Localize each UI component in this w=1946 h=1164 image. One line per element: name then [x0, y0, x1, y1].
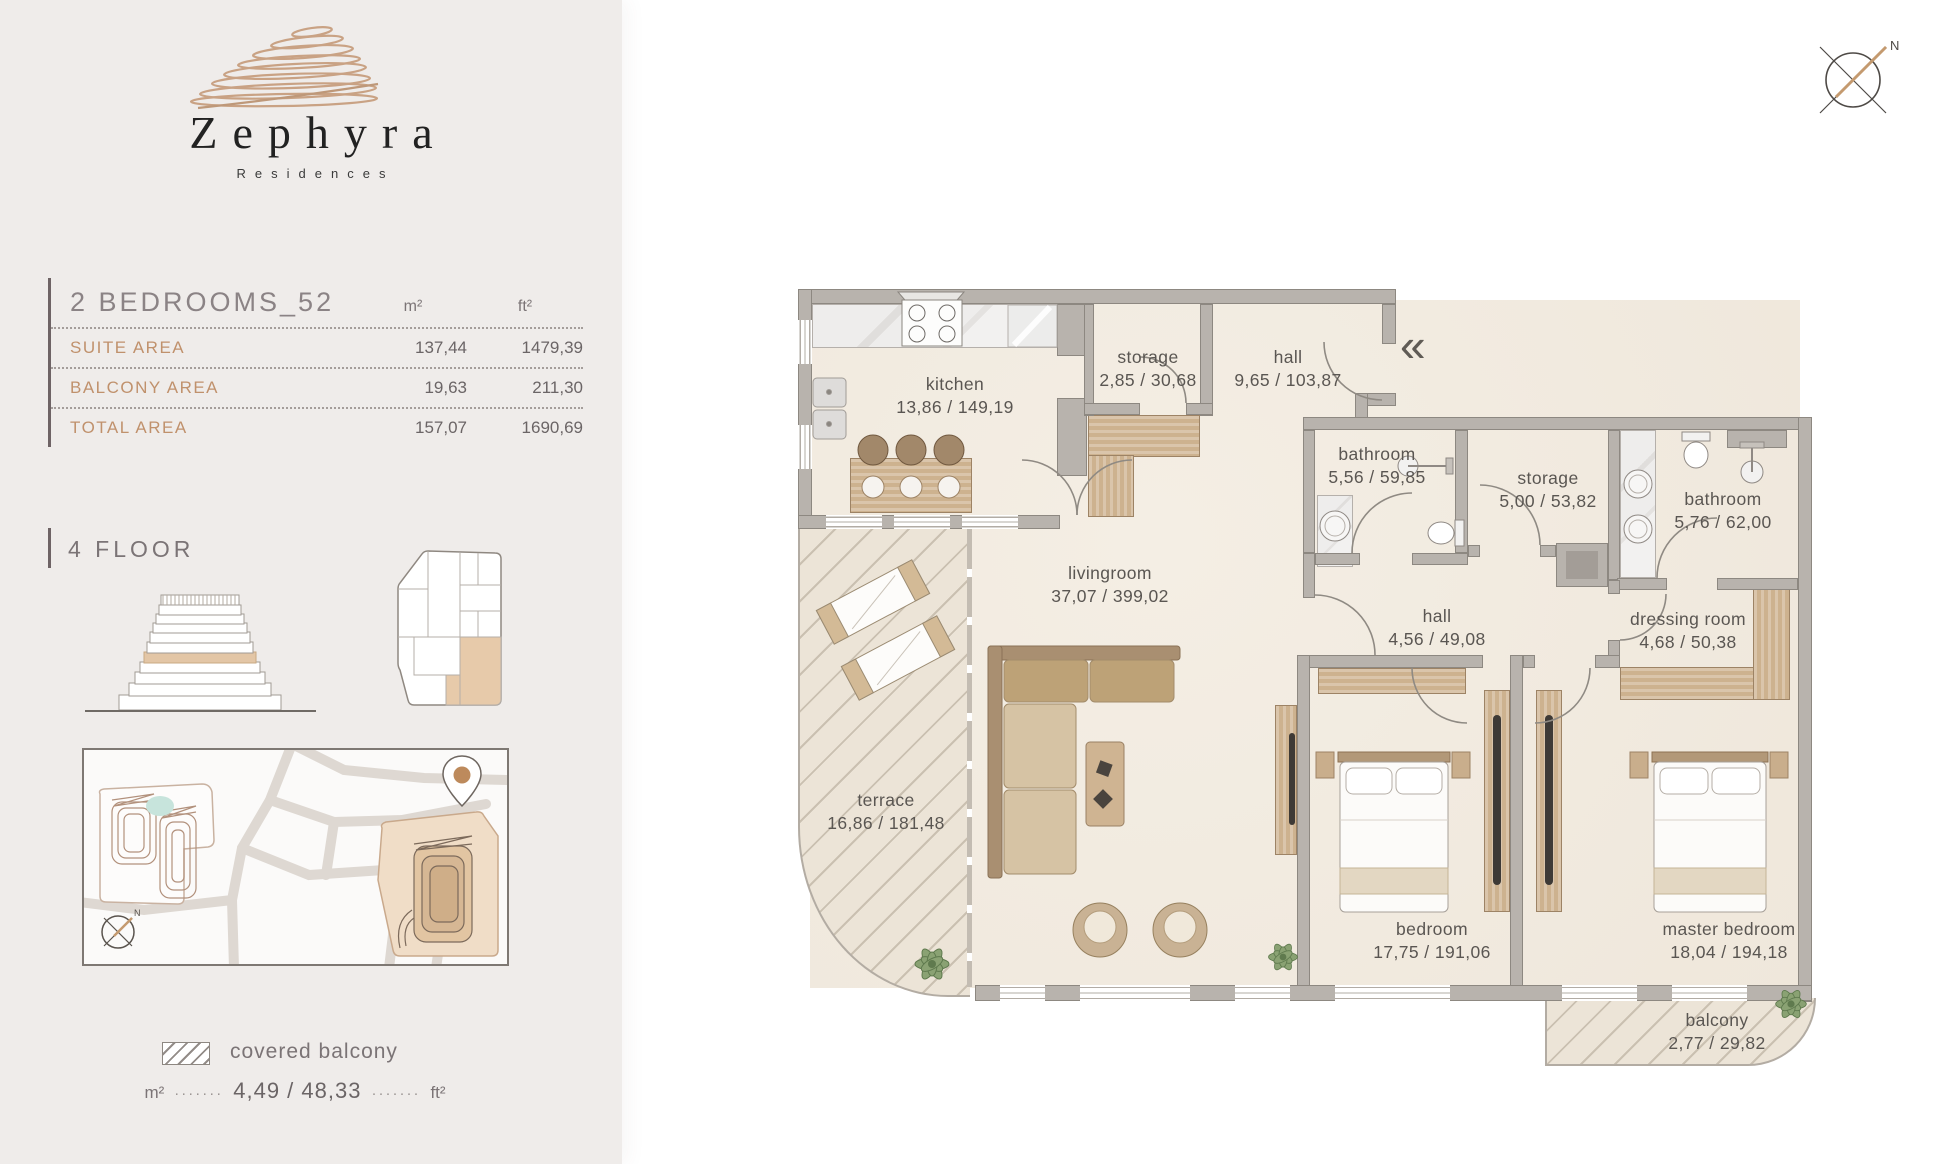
table-row: SUITE AREA 137,44 1479,39 — [51, 327, 583, 367]
row-ft2: 1690,69 — [467, 418, 583, 438]
room-label-storage-1: storage 2,85 / 30,68 — [1099, 346, 1196, 392]
room-name: balcony — [1668, 1009, 1765, 1032]
map-pin-icon — [443, 756, 481, 806]
window — [826, 515, 882, 529]
covered-balcony-label: covered balcony — [230, 1040, 398, 1064]
room-label-master-bedroom: master bedroom 18,04 / 194,18 — [1662, 918, 1795, 964]
brand-name: Zephyra — [0, 106, 622, 159]
logo-scribble-icon — [190, 20, 405, 115]
wardrobe-rail — [1545, 715, 1553, 885]
covered-balcony-area: m² ······· 4,49 / 48,33 ······· ft² — [135, 1078, 455, 1104]
room-area: 9,65 / 103,87 — [1234, 369, 1341, 392]
room-name: terrace — [827, 789, 945, 812]
wardrobe-rail — [1493, 715, 1501, 885]
door-arc — [1022, 460, 1077, 515]
window — [1080, 985, 1190, 1001]
wall — [1717, 578, 1798, 590]
legend-value: 4,49 / 48,33 — [233, 1078, 361, 1104]
page: Zephyra Residences 2 BEDROOMS_52 m² ft² … — [0, 0, 1946, 1164]
wall — [1057, 304, 1087, 356]
wall — [798, 289, 1396, 304]
map-compass-icon: N — [102, 908, 141, 948]
room-label-hall-1: hall 9,65 / 103,87 — [1234, 346, 1341, 392]
room-name: storage — [1099, 346, 1196, 369]
room-label-livingroom: livingroom 37,07 / 399,02 — [1051, 562, 1169, 608]
leader-dots: ······· — [174, 1085, 223, 1102]
floor-bar — [48, 528, 51, 568]
room-area: 5,00 / 53,82 — [1499, 490, 1596, 513]
bathroom2-vanity — [1620, 430, 1656, 578]
room-label-dressing-room: dressing room 4,68 / 50,38 — [1623, 608, 1753, 654]
map-pond — [146, 796, 174, 816]
area-table-header: 2 BEDROOMS_52 m² ft² — [51, 278, 583, 327]
room-area: 37,07 / 399,02 — [1051, 585, 1169, 608]
room-name: master bedroom — [1662, 918, 1795, 941]
column-m2: m² — [359, 298, 467, 316]
row-label: SUITE AREA — [70, 338, 359, 358]
hall-wardrobe — [1088, 415, 1200, 457]
legend-m2: m² — [144, 1083, 164, 1103]
wall — [1455, 430, 1468, 553]
room-area: 17,75 / 191,06 — [1373, 941, 1491, 964]
window — [1335, 985, 1450, 1001]
row-ft2: 1479,39 — [467, 338, 583, 358]
room-name: bedroom — [1373, 918, 1491, 941]
wall — [1510, 655, 1523, 1000]
window — [1672, 985, 1747, 1001]
wall — [1382, 304, 1396, 344]
entry-chevrons: « — [1400, 318, 1426, 372]
column-ft2: ft² — [467, 298, 583, 316]
wall — [1315, 553, 1360, 565]
wall — [1303, 655, 1483, 668]
brand-subtitle: Residences — [0, 166, 622, 181]
room-name: kitchen — [896, 373, 1014, 396]
room-label-storage-2: storage 5,00 / 53,82 — [1499, 467, 1596, 513]
wall — [1727, 430, 1787, 448]
wall — [1540, 545, 1556, 557]
room-area: 5,56 / 59,85 — [1328, 466, 1425, 489]
door-arc — [1412, 668, 1467, 723]
room-name: bathroom — [1674, 488, 1771, 511]
door-arc — [1315, 595, 1375, 655]
legend-ft2: ft² — [430, 1083, 445, 1103]
svg-text:N: N — [1890, 38, 1899, 53]
room-area: 18,04 / 194,18 — [1662, 941, 1795, 964]
table-row: TOTAL AREA 157,07 1690,69 — [51, 407, 583, 447]
window — [962, 515, 1018, 529]
wall — [1303, 553, 1315, 598]
location-map: N — [82, 748, 509, 966]
map-parcel-highlighted — [378, 812, 498, 956]
covered-balcony-swatch — [162, 1042, 210, 1065]
room-name: storage — [1499, 467, 1596, 490]
room-label-balcony: balcony 2,77 / 29,82 — [1668, 1009, 1765, 1055]
room-name: livingroom — [1051, 562, 1169, 585]
window — [1562, 985, 1637, 1001]
window — [894, 515, 950, 529]
terrace-rail — [967, 529, 972, 987]
room-label-bathroom-2: bathroom 5,76 / 62,00 — [1674, 488, 1771, 534]
sidebar: Zephyra Residences 2 BEDROOMS_52 m² ft² … — [0, 0, 622, 1164]
room-label-kitchen: kitchen 13,86 / 149,19 — [896, 373, 1014, 419]
door-arc — [1352, 493, 1412, 553]
row-m2: 157,07 — [359, 418, 467, 438]
room-name: bathroom — [1328, 443, 1425, 466]
room-area: 13,86 / 149,19 — [896, 396, 1014, 419]
wall — [1297, 655, 1310, 1000]
dressing-wardrobe — [1753, 588, 1790, 700]
room-area: 16,86 / 181,48 — [827, 812, 945, 835]
leader-dots: ······· — [371, 1085, 420, 1102]
wall — [1608, 580, 1620, 594]
service-duct — [1556, 543, 1608, 587]
wall — [1608, 430, 1620, 580]
room-label-bedroom: bedroom 17,75 / 191,06 — [1373, 918, 1491, 964]
room-area: 2,85 / 30,68 — [1099, 369, 1196, 392]
wall — [1303, 430, 1315, 553]
window — [798, 425, 812, 469]
wall — [1412, 553, 1468, 565]
row-m2: 19,63 — [359, 378, 467, 398]
wall — [1084, 304, 1094, 416]
wall — [1303, 417, 1812, 430]
window — [1000, 985, 1045, 1001]
room-area: 4,56 / 49,08 — [1388, 628, 1485, 651]
wall — [1617, 578, 1667, 590]
row-m2: 137,44 — [359, 338, 467, 358]
area-table: 2 BEDROOMS_52 m² ft² SUITE AREA 137,44 1… — [48, 278, 583, 447]
wall — [1468, 545, 1480, 557]
table-row: BALCONY AREA 19,63 211,30 — [51, 367, 583, 407]
door-arc — [1077, 460, 1132, 515]
row-label: TOTAL AREA — [70, 418, 359, 438]
room-area: 5,76 / 62,00 — [1674, 511, 1771, 534]
window — [1235, 985, 1290, 1001]
room-label-bathroom-1: bathroom 5,56 / 59,85 — [1328, 443, 1425, 489]
wall — [1200, 304, 1213, 416]
room-name: dressing room — [1623, 608, 1753, 631]
svg-text:N: N — [134, 908, 141, 918]
room-label-hall-2: hall 4,56 / 49,08 — [1388, 605, 1485, 651]
north-compass-icon: N — [1810, 36, 1920, 131]
tv-screen — [1289, 733, 1295, 825]
kitchen-island — [850, 458, 972, 513]
floor-label: 4 FLOOR — [68, 536, 194, 563]
unit-title: 2 BEDROOMS_52 — [70, 287, 359, 318]
wall — [1523, 655, 1535, 668]
room-area: 2,77 / 29,82 — [1668, 1032, 1765, 1055]
map-canvas: N — [84, 750, 507, 964]
room-label-terrace: terrace 16,86 / 181,48 — [827, 789, 945, 835]
wall — [1186, 403, 1213, 415]
wall — [1595, 655, 1620, 668]
room-area: 4,68 / 50,38 — [1623, 631, 1753, 654]
window — [798, 320, 812, 364]
building-elevation-icon — [83, 583, 318, 715]
wall — [1084, 403, 1140, 415]
kitchen-counter — [812, 304, 1058, 348]
room-name: hall — [1234, 346, 1341, 369]
room-name: hall — [1388, 605, 1485, 628]
wall — [1798, 417, 1812, 1002]
row-ft2: 211,30 — [467, 378, 583, 398]
door-arc — [1535, 668, 1590, 723]
building-footprint-icon — [394, 545, 506, 715]
row-label: BALCONY AREA — [70, 378, 359, 398]
